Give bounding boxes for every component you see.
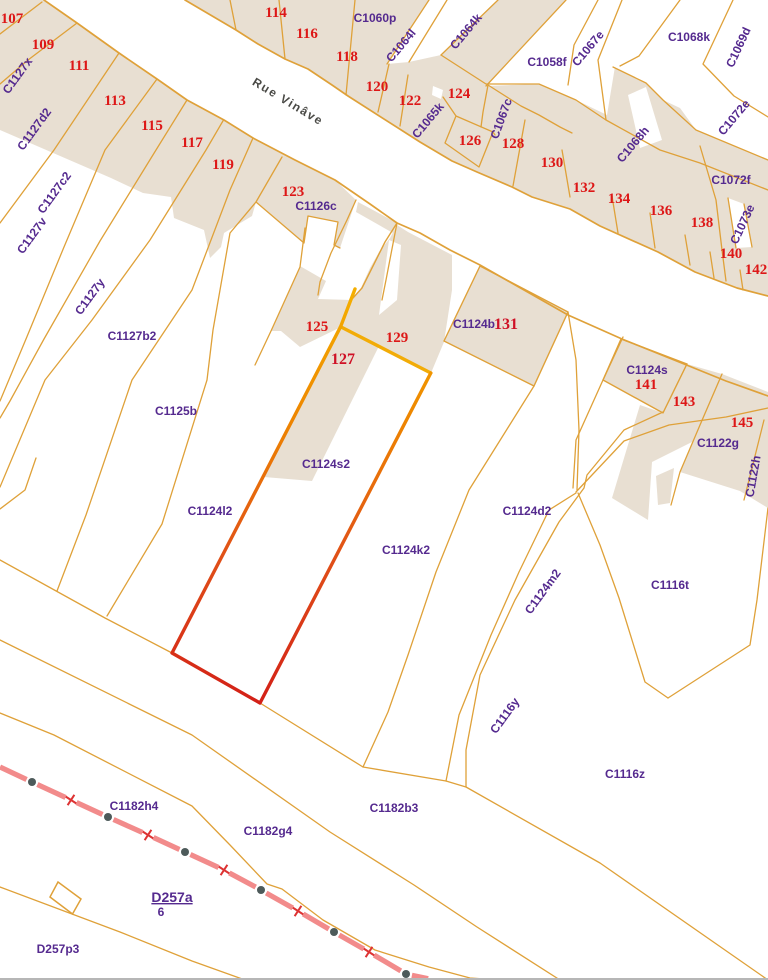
svg-text:141: 141: [635, 377, 658, 393]
svg-text:113: 113: [104, 93, 126, 109]
svg-text:114: 114: [265, 5, 287, 21]
svg-text:C1122g: C1122g: [697, 436, 739, 450]
svg-text:129: 129: [386, 330, 409, 346]
svg-text:130: 130: [541, 155, 564, 171]
svg-text:128: 128: [502, 136, 525, 152]
svg-text:123: 123: [282, 184, 305, 200]
svg-text:6: 6: [158, 905, 165, 919]
svg-text:C1058f: C1058f: [527, 55, 567, 69]
svg-text:118: 118: [336, 49, 358, 65]
svg-text:122: 122: [399, 93, 422, 109]
svg-text:C1060p: C1060p: [354, 11, 397, 25]
svg-text:124: 124: [448, 86, 471, 102]
svg-text:107: 107: [1, 11, 24, 27]
svg-text:136: 136: [650, 203, 673, 219]
svg-text:C1182g4: C1182g4: [244, 824, 293, 838]
svg-text:C1072f: C1072f: [711, 173, 751, 187]
svg-text:119: 119: [212, 157, 234, 173]
svg-text:C1125b: C1125b: [155, 404, 197, 418]
svg-text:D257a: D257a: [151, 889, 192, 905]
svg-text:143: 143: [673, 394, 696, 410]
svg-text:140: 140: [720, 246, 743, 262]
svg-text:C1127b2: C1127b2: [108, 329, 157, 343]
svg-text:111: 111: [69, 58, 90, 74]
svg-text:116: 116: [296, 26, 318, 42]
svg-text:142: 142: [745, 262, 768, 278]
svg-text:C1182b3: C1182b3: [370, 801, 419, 815]
svg-text:C1124l2: C1124l2: [188, 504, 233, 518]
svg-text:C1116t: C1116t: [651, 578, 689, 592]
svg-text:C1116z: C1116z: [605, 767, 645, 781]
svg-text:132: 132: [573, 180, 596, 196]
svg-text:C1126c: C1126c: [295, 199, 337, 213]
svg-text:C1124s2: C1124s2: [302, 457, 350, 471]
svg-text:125: 125: [306, 319, 329, 335]
svg-text:134: 134: [608, 191, 631, 207]
svg-text:126: 126: [459, 133, 482, 149]
svg-text:C1124s: C1124s: [626, 363, 668, 377]
svg-text:D257p3: D257p3: [37, 942, 80, 956]
svg-text:C1124k2: C1124k2: [382, 543, 430, 557]
svg-text:145: 145: [731, 415, 754, 431]
svg-text:109: 109: [32, 37, 55, 53]
svg-text:C1182h4: C1182h4: [110, 799, 159, 813]
svg-text:138: 138: [691, 215, 714, 231]
svg-text:127: 127: [331, 351, 355, 368]
svg-text:115: 115: [141, 118, 163, 134]
svg-text:C1068k: C1068k: [668, 30, 710, 44]
svg-text:120: 120: [366, 79, 389, 95]
svg-text:131: 131: [494, 316, 518, 333]
svg-text:C1124b: C1124b: [453, 317, 495, 331]
svg-text:C1124d2: C1124d2: [503, 504, 552, 518]
svg-text:117: 117: [181, 135, 203, 151]
